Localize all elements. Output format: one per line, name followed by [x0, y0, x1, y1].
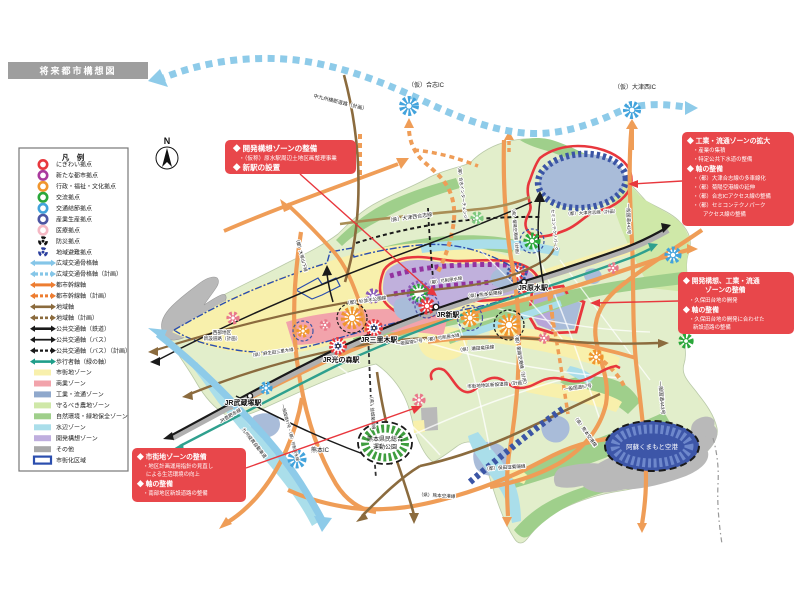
svg-text:公共交通軸（バス）: 公共交通軸（バス） — [56, 336, 110, 344]
svg-text:市街地ゾーン: 市街地ゾーン — [56, 369, 92, 377]
svg-text:地域避難拠点: 地域避難拠点 — [56, 248, 92, 256]
svg-text:歩行者軸（緑の軸）: 歩行者軸（緑の軸） — [56, 358, 110, 366]
svg-text:・特定公共下水道の整備: ・特定公共下水道の整備 — [693, 155, 753, 163]
svg-text:・（都）セミコンテクノパーク: ・（都）セミコンテクノパーク — [693, 202, 765, 209]
svg-text:◆ 軸の整備: ◆ 軸の整備 — [136, 479, 173, 488]
svg-text:◆ 開発構想ゾーンの整備: ◆ 開発構想ゾーンの整備 — [232, 143, 318, 153]
svg-text:防災拠点: 防災拠点 — [56, 237, 80, 245]
svg-text:交流拠点: 交流拠点 — [56, 194, 80, 202]
svg-text:商業ゾーン: 商業ゾーン — [56, 380, 86, 388]
svg-text:新設道路（計画）: 新設道路（計画） — [204, 335, 241, 342]
svg-text:◆ 軸の整備: ◆ 軸の整備 — [686, 164, 723, 173]
svg-text:自然環境・緑地保全ゾーン: 自然環境・緑地保全ゾーン — [56, 413, 128, 421]
svg-text:JR原水駅: JR原水駅 — [518, 283, 549, 292]
svg-text:都市幹線軸（計画）: 都市幹線軸（計画） — [56, 292, 110, 300]
svg-text:・（都）合志ICアクセス線の整備: ・（都）合志ICアクセス線の整備 — [693, 192, 771, 200]
svg-text:守るべき農地ゾーン: 守るべき農地ゾーン — [56, 402, 110, 410]
svg-text:・産業の集積: ・産業の集積 — [693, 146, 726, 154]
svg-text:開発構想ゾーン: 開発構想ゾーン — [56, 434, 98, 442]
svg-text:・久保田台地の開発に合わせた: ・久保田台地の開発に合わせた — [689, 315, 764, 323]
svg-text:・（仮称）原水駅周辺土地区画整理事業: ・（仮称）原水駅周辺土地区画整理事業 — [239, 154, 337, 162]
svg-text:N: N — [164, 136, 171, 146]
svg-text:・久保田台地の開発: ・久保田台地の開発 — [689, 296, 738, 304]
svg-text:水辺ゾーン: 水辺ゾーン — [56, 424, 86, 432]
svg-text:◆ 開発構想、工業・流通: ◆ 開発構想、工業・流通 — [682, 276, 760, 285]
svg-text:JR光の森駅: JR光の森駅 — [323, 355, 361, 364]
svg-text:将来都市構想図: 将来都市構想図 — [39, 65, 116, 76]
svg-text:熊本県民総合: 熊本県民総合 — [367, 435, 403, 443]
svg-text:熊本IC: 熊本IC — [311, 446, 330, 454]
svg-text:運動公園: 運動公園 — [373, 443, 397, 451]
svg-text:凡 例: 凡 例 — [62, 152, 85, 162]
svg-text:（仮）大津西IC: （仮）大津西IC — [614, 83, 657, 91]
svg-text:◆ 軸の整備: ◆ 軸の整備 — [682, 305, 719, 314]
svg-text:◆ 新駅の設置: ◆ 新駅の設置 — [232, 162, 281, 172]
svg-text:ゾーンの整備: ゾーンの整備 — [705, 285, 746, 294]
svg-text:地域軸（計画）: 地域軸（計画） — [56, 314, 98, 322]
svg-text:・（都）大津合志線の多車線化: ・（都）大津合志線の多車線化 — [693, 174, 766, 182]
svg-text:（仮）合志IC: （仮）合志IC — [408, 81, 445, 89]
svg-text:都市幹線軸: 都市幹線軸 — [56, 281, 86, 289]
svg-text:JR新駅: JR新駅 — [437, 310, 461, 319]
svg-text:産業生産拠点: 産業生産拠点 — [56, 215, 92, 223]
svg-text:行政・福祉・文化拠点: 行政・福祉・文化拠点 — [56, 183, 116, 191]
svg-text:アクセス線の整備: アクセス線の整備 — [703, 210, 746, 218]
svg-text:・地区計画運用指針の見直し: ・地区計画運用指針の見直し — [143, 462, 213, 470]
svg-text:公共交通軸（バス）（計画）: 公共交通軸（バス）（計画） — [56, 347, 131, 355]
svg-text:・（都）菊陽空港線の延伸: ・（都）菊陽空港線の延伸 — [693, 183, 756, 191]
svg-text:公共交通軸（鉄道）: 公共交通軸（鉄道） — [56, 325, 110, 333]
svg-text:による生活環境の向上: による生活環境の向上 — [146, 470, 200, 478]
svg-text:JR三里木駅: JR三里木駅 — [361, 335, 399, 344]
svg-text:地域軸: 地域軸 — [56, 303, 74, 311]
svg-text:交通結節拠点: 交通結節拠点 — [56, 205, 92, 213]
svg-text:◆ 市街地ゾーンの整備: ◆ 市街地ゾーンの整備 — [136, 452, 207, 461]
svg-text:・南部地区新設道路の整備: ・南部地区新設道路の整備 — [143, 489, 208, 497]
svg-text:広域交通骨格軸: 広域交通骨格軸 — [56, 259, 98, 267]
svg-text:市街化区域: 市街化区域 — [56, 456, 86, 464]
svg-text:工業・流通ゾーン: 工業・流通ゾーン — [56, 391, 104, 399]
svg-text:新設道路の整備: 新設道路の整備 — [693, 323, 731, 331]
svg-text:広域交通骨格軸（計画）: 広域交通骨格軸（計画） — [56, 270, 122, 278]
svg-text:その他: その他 — [56, 445, 74, 453]
svg-text:JR武蔵塚駅: JR武蔵塚駅 — [225, 398, 263, 407]
svg-text:にぎわい拠点: にぎわい拠点 — [56, 161, 92, 169]
svg-text:新たな都市拠点: 新たな都市拠点 — [56, 172, 98, 180]
svg-text:医療拠点: 医療拠点 — [56, 226, 80, 234]
svg-text:◆ 工業・流通ゾーンの拡大: ◆ 工業・流通ゾーンの拡大 — [686, 136, 770, 145]
svg-text:阿蘇くまもと空港: 阿蘇くまもと空港 — [626, 442, 678, 451]
svg-text:西部地区: 西部地区 — [213, 329, 232, 336]
